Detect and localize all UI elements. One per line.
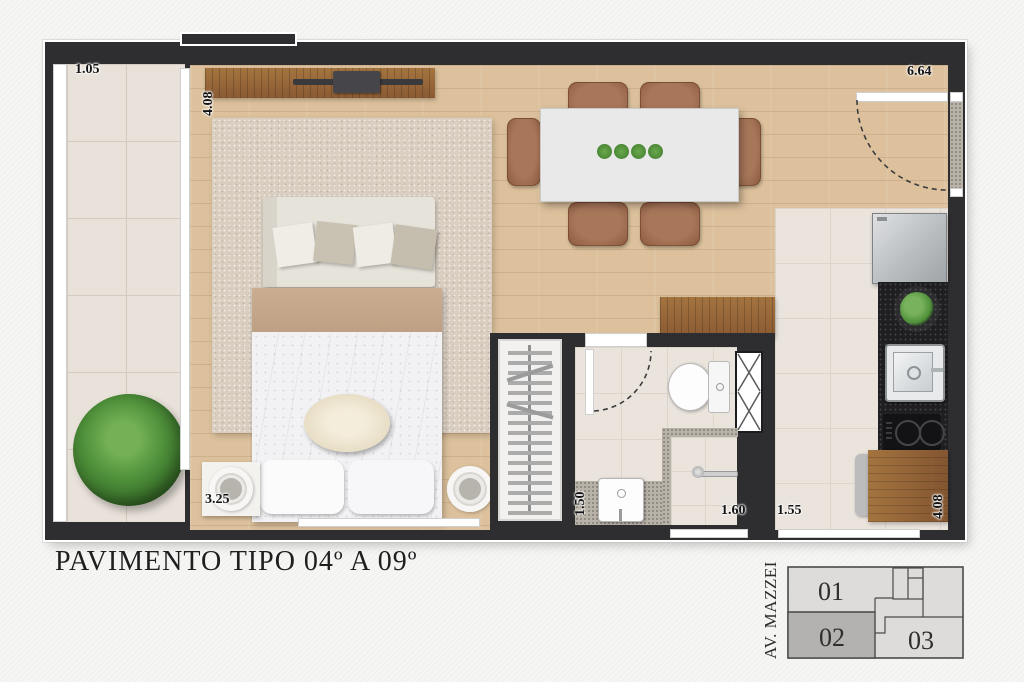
refrigerator: [872, 213, 947, 284]
basin-drain: [617, 489, 626, 498]
pillow: [260, 460, 344, 514]
tv-base: [333, 71, 380, 93]
bathroom-window: [670, 529, 748, 538]
table-plant-icon: [614, 144, 629, 159]
shower-bar: [698, 471, 738, 477]
cooktop: [883, 414, 941, 450]
shower-partition: [662, 428, 671, 525]
dim-bedroom-width: 3.25: [205, 492, 230, 508]
shower-head-icon: [692, 466, 704, 478]
dim-bedroom-depth: 4.08: [201, 92, 217, 117]
lamp-core: [459, 478, 481, 500]
pillow: [348, 460, 434, 514]
tv-console: [205, 68, 435, 98]
fridge-handle: [877, 217, 887, 221]
bed-blanket: [252, 288, 442, 334]
dining-chair: [507, 118, 541, 186]
fur-throw: [304, 394, 390, 452]
entry-door-leaf: [856, 92, 948, 102]
bedroom-window: [298, 518, 480, 527]
dining-table: [540, 108, 739, 202]
bath-closet-block: [490, 333, 775, 530]
table-plant-icon: [597, 144, 612, 159]
kitchen-window: [778, 529, 920, 538]
dim-balcony-width: 1.05: [75, 62, 100, 78]
bedroom-balcony-window: [180, 68, 190, 470]
wall-protrusion: [182, 34, 295, 44]
unit-01-label: 01: [818, 577, 844, 606]
sink-faucet: [931, 368, 943, 372]
bathroom-door-leaf: [585, 349, 594, 415]
unit-02-label: 02: [819, 623, 845, 652]
kitchen-sink: [885, 344, 945, 402]
burner-icon: [919, 420, 945, 446]
entry-side-wall: [950, 102, 963, 188]
washbasin: [598, 478, 644, 522]
toilet-flush-button: [716, 383, 724, 391]
burner-icon: [895, 420, 921, 446]
toilet: [668, 361, 730, 411]
table-plant-icon: [631, 144, 646, 159]
cooktop-knobs: [886, 422, 892, 440]
toilet-bowl: [668, 363, 712, 411]
bed: [252, 288, 442, 522]
sofa: [263, 197, 435, 287]
sofa-cushion: [390, 224, 437, 269]
dining-chair: [640, 202, 700, 246]
dim-kitchen-width: 1.55: [777, 503, 802, 519]
dim-entry-width: 6.64: [907, 64, 932, 80]
shaft-x-pattern: [737, 353, 761, 431]
closet-rack: [498, 339, 562, 521]
tree-icon: [73, 394, 185, 506]
sofa-cushion: [313, 221, 357, 265]
shower-partition: [662, 428, 738, 437]
unit-03-label: 03: [908, 626, 934, 655]
counter-plant-icon: [900, 292, 934, 326]
sofa-cushion: [272, 222, 317, 267]
basin-faucet: [619, 509, 622, 521]
floor-plan-sheet: 1.05 4.08 6.64 3.25 1.50 1.60 1.55 4.08 …: [0, 0, 1024, 682]
dim-bathroom-length: 1.60: [721, 503, 746, 519]
dim-kitchen-depth: 4.08: [931, 495, 947, 520]
key-plan: 01 02 03: [755, 560, 970, 665]
page-title: PAVIMENTO TIPO 04º A 09º: [55, 546, 417, 578]
door-jamb: [950, 188, 963, 197]
door-jamb: [950, 92, 963, 102]
dining-chair: [568, 202, 628, 246]
wall-segment: [763, 340, 775, 530]
ventilation-shaft: [737, 353, 761, 431]
sink-drain: [907, 366, 921, 380]
kitchen-counter: [878, 282, 948, 452]
apartment-floor-plan: 1.05 4.08 6.64 3.25 1.50 1.60 1.55 4.08: [45, 42, 965, 540]
sideboard-cabinet: [660, 297, 775, 337]
bathroom-door-opening: [585, 333, 647, 347]
table-plant-icon: [648, 144, 663, 159]
balcony-glass-railing: [53, 64, 67, 522]
dim-bathroom-width: 1.50: [573, 492, 589, 517]
